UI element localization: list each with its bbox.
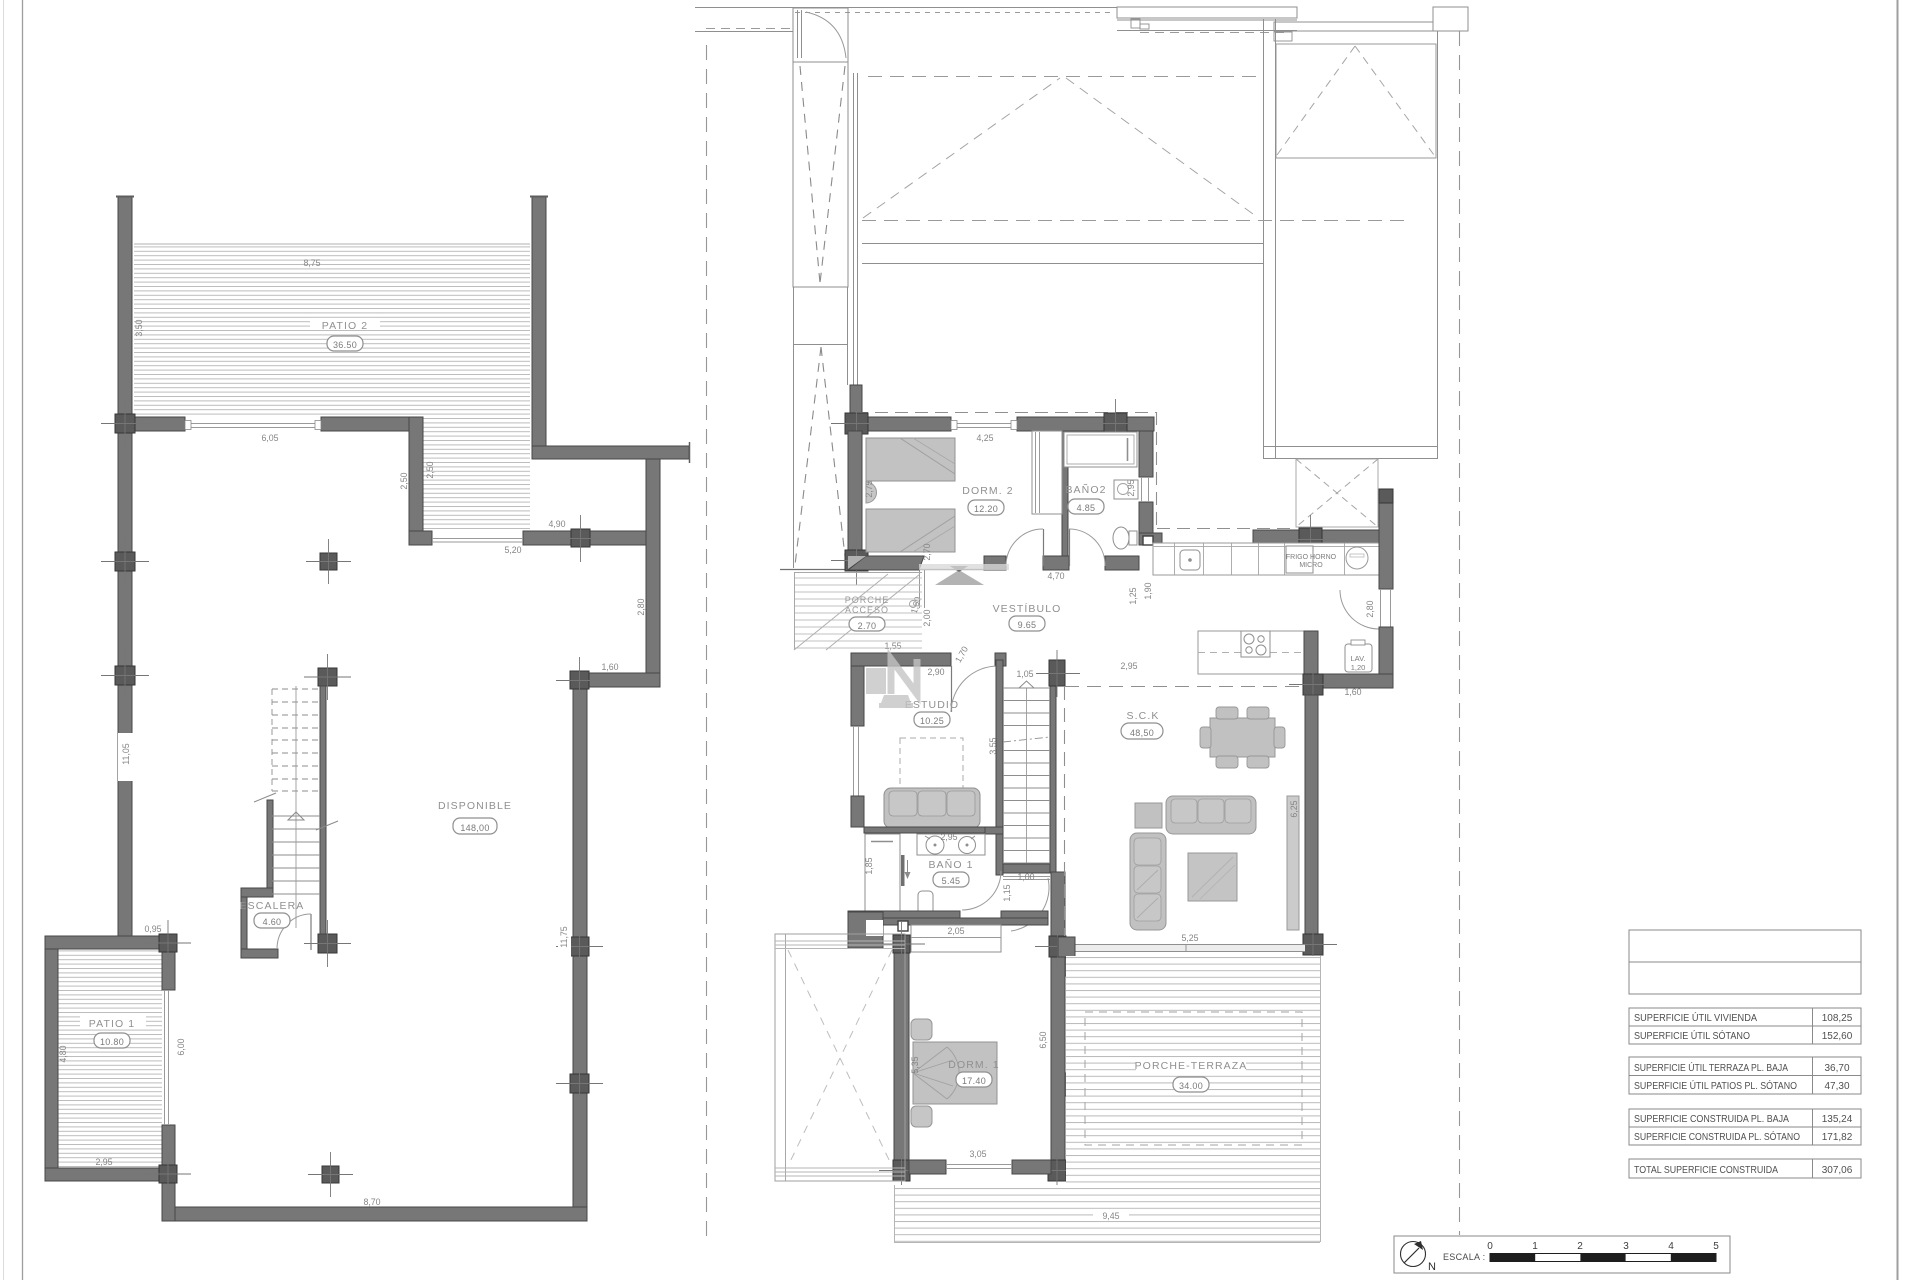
svg-text:SUPERFICIE CONSTRUIDA PL. BAJA: SUPERFICIE CONSTRUIDA PL. BAJA — [1634, 1114, 1789, 1125]
svg-text:152,60: 152,60 — [1822, 1031, 1853, 1042]
svg-text:1,20: 1,20 — [1351, 663, 1366, 672]
svg-text:LAV.: LAV. — [1350, 654, 1365, 663]
svg-text:3: 3 — [1623, 1241, 1629, 1252]
svg-text:2,95: 2,95 — [1126, 479, 1136, 496]
svg-text:12.20: 12.20 — [974, 504, 998, 514]
svg-text:5,35: 5,35 — [910, 1056, 920, 1073]
svg-text:2,05: 2,05 — [947, 926, 964, 936]
svg-text:ESCALA :: ESCALA : — [1443, 1252, 1485, 1262]
svg-text:5,20: 5,20 — [504, 545, 521, 555]
svg-text:ACCESO: ACCESO — [845, 605, 889, 615]
svg-text:2,75: 2,75 — [864, 480, 874, 497]
svg-text:11,05: 11,05 — [121, 743, 131, 764]
svg-text:1,60: 1,60 — [601, 662, 618, 672]
svg-text:2,50: 2,50 — [425, 461, 435, 478]
svg-text:36,70: 36,70 — [1824, 1063, 1849, 1074]
svg-text:10.80: 10.80 — [100, 1037, 124, 1047]
svg-text:108,25: 108,25 — [1822, 1013, 1853, 1024]
svg-text:8,75: 8,75 — [303, 258, 320, 268]
svg-text:2,95: 2,95 — [1120, 661, 1137, 671]
svg-text:2,00: 2,00 — [922, 609, 932, 626]
svg-text:4.60: 4.60 — [263, 917, 282, 927]
svg-text:135,24: 135,24 — [1822, 1114, 1853, 1125]
svg-text:17.40: 17.40 — [962, 1076, 986, 1086]
svg-text:2.70: 2.70 — [858, 621, 877, 631]
svg-text:4: 4 — [1668, 1241, 1674, 1252]
svg-text:TOTAL SUPERFICIE CONSTRUIDA: TOTAL SUPERFICIE CONSTRUIDA — [1634, 1165, 1778, 1176]
svg-text:9,45: 9,45 — [1102, 1211, 1119, 1221]
svg-text:36.50: 36.50 — [333, 340, 357, 350]
svg-text:171,82: 171,82 — [1822, 1132, 1853, 1143]
svg-text:2,95: 2,95 — [95, 1157, 112, 1167]
svg-text:4.85: 4.85 — [1077, 503, 1096, 513]
svg-text:6,00: 6,00 — [176, 1038, 186, 1055]
svg-text:5: 5 — [1713, 1241, 1719, 1252]
svg-text:4,80: 4,80 — [58, 1045, 68, 1062]
svg-text:1: 1 — [1532, 1241, 1538, 1252]
svg-text:DORM. 1: DORM. 1 — [948, 1059, 999, 1071]
svg-text:4,90: 4,90 — [548, 519, 565, 529]
svg-text:34.00: 34.00 — [1179, 1081, 1203, 1091]
svg-text:1,25: 1,25 — [1128, 587, 1138, 604]
svg-text:PATIO 2: PATIO 2 — [322, 320, 368, 332]
svg-text:2,70: 2,70 — [922, 543, 932, 560]
svg-text:6,05: 6,05 — [261, 433, 278, 443]
svg-text:9.65: 9.65 — [1018, 620, 1037, 630]
svg-text:PORCHE-TERRAZA: PORCHE-TERRAZA — [1135, 1060, 1248, 1072]
svg-text:SUPERFICIE ÚTIL VIVIENDA: SUPERFICIE ÚTIL VIVIENDA — [1634, 1011, 1757, 1024]
svg-text:FRIGO HORNO: FRIGO HORNO — [1286, 554, 1337, 561]
svg-text:10.25: 10.25 — [920, 716, 944, 726]
svg-text:PORCHE: PORCHE — [845, 595, 890, 605]
svg-text:SUPERFICIE ÚTIL PATIOS PL. SÓT: SUPERFICIE ÚTIL PATIOS PL. SÓTANO — [1634, 1079, 1797, 1092]
svg-text:MICRO: MICRO — [1299, 562, 1323, 569]
svg-text:DISPONIBLE: DISPONIBLE — [438, 800, 512, 812]
svg-text:6,50: 6,50 — [1038, 1031, 1048, 1048]
svg-text:BAÑO2: BAÑO2 — [1065, 483, 1106, 496]
svg-text:6,25: 6,25 — [1289, 800, 1299, 817]
svg-text:PATIO 1: PATIO 1 — [89, 1018, 135, 1030]
svg-text:DORM. 2: DORM. 2 — [962, 485, 1013, 497]
svg-text:2,95: 2,95 — [940, 832, 957, 842]
svg-text:VESTÍBULO: VESTÍBULO — [993, 602, 1062, 615]
svg-text:8,70: 8,70 — [363, 1197, 380, 1207]
svg-text:1,85: 1,85 — [864, 857, 874, 874]
svg-text:SUPERFICIE ÚTIL TERRAZA PL. BA: SUPERFICIE ÚTIL TERRAZA PL. BAJA — [1634, 1061, 1788, 1074]
svg-text:1,55: 1,55 — [884, 641, 901, 651]
svg-text:11,75: 11,75 — [559, 926, 569, 947]
svg-text:1,15: 1,15 — [1002, 884, 1012, 901]
svg-text:48,50: 48,50 — [1130, 728, 1154, 738]
svg-text:SUPERFICIE CONSTRUIDA PL. SÓTA: SUPERFICIE CONSTRUIDA PL. SÓTANO — [1634, 1130, 1800, 1143]
svg-text:2,90: 2,90 — [927, 667, 944, 677]
svg-text:148,00: 148,00 — [460, 823, 489, 833]
svg-text:3,50: 3,50 — [134, 319, 144, 336]
svg-text:1,05: 1,05 — [1016, 669, 1033, 679]
svg-text:1,00: 1,00 — [1017, 872, 1034, 882]
svg-text:0,95: 0,95 — [144, 924, 161, 934]
svg-text:2,50: 2,50 — [399, 472, 409, 489]
svg-text:ESCALERA: ESCALERA — [240, 900, 305, 912]
svg-text:47,30: 47,30 — [1824, 1081, 1849, 1092]
svg-text:0: 0 — [1487, 1241, 1493, 1252]
svg-text:307,06: 307,06 — [1822, 1165, 1853, 1176]
svg-text:5,25: 5,25 — [1181, 933, 1198, 943]
svg-text:4,25: 4,25 — [976, 433, 993, 443]
svg-text:3,05: 3,05 — [969, 1149, 986, 1159]
svg-text:1,60: 1,60 — [1344, 687, 1361, 697]
svg-text:S.C.K: S.C.K — [1127, 710, 1160, 722]
svg-text:BAÑO 1: BAÑO 1 — [928, 858, 973, 871]
svg-text:N: N — [1428, 1261, 1436, 1273]
svg-text:2: 2 — [1577, 1241, 1583, 1252]
svg-text:2,80: 2,80 — [1365, 600, 1375, 617]
svg-text:3,55: 3,55 — [988, 737, 998, 754]
svg-text:4,70: 4,70 — [1047, 571, 1064, 581]
svg-text:2,80: 2,80 — [636, 598, 646, 615]
svg-text:1,90: 1,90 — [1143, 582, 1153, 599]
svg-text:5.45: 5.45 — [942, 876, 961, 886]
svg-text:SUPERFICIE ÚTIL SÓTANO: SUPERFICIE ÚTIL SÓTANO — [1634, 1029, 1750, 1042]
